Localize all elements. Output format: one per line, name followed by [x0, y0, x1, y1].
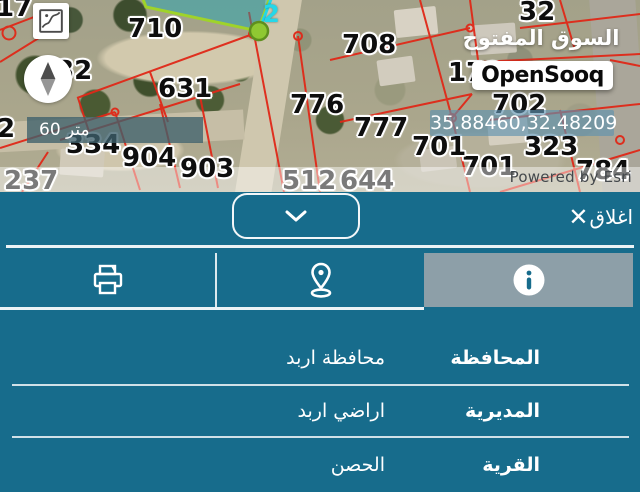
parcel-label: 631 [158, 74, 212, 104]
row-label: القرية [385, 454, 540, 476]
header-divider [6, 245, 634, 248]
compass-needle-icon [32, 61, 64, 97]
opensooq-logo: OpenSooq [472, 61, 613, 90]
parcel-label: 903 [180, 154, 234, 184]
basemap-toggle-button[interactable] [33, 3, 69, 39]
tab-info-active[interactable] [424, 253, 633, 307]
selected-parcel-marker-label: 2 [263, 0, 280, 28]
collapse-panel-button[interactable] [232, 193, 360, 239]
info-row-governorate: المحافظة محافظة اربد [0, 330, 640, 385]
parcel-label: 904 [122, 143, 176, 173]
parcel-label: 776 [290, 90, 344, 120]
close-label: اغلاق [590, 205, 633, 229]
parcel-label: 710 [128, 14, 182, 44]
opensooq-arabic-logo: السوق المفتوح [462, 26, 620, 50]
info-icon [511, 262, 547, 298]
parcel-info-panel: ✕ اغلاق [0, 192, 640, 480]
row-value: اراضي اربد [298, 400, 385, 422]
parcel-label: 323 [524, 132, 578, 162]
tab-location[interactable] [217, 253, 424, 307]
tab-print[interactable] [0, 253, 215, 307]
parcel-label: 17 [0, 0, 32, 23]
info-row-directorate: المديرية اراضي اربد [0, 385, 640, 437]
info-row-village: القرية الحصن [0, 437, 640, 492]
satellite-map[interactable]: 710 632 631 708 32 173 702 776 777 701 3… [0, 0, 640, 192]
parcel-label: 701 [412, 132, 466, 162]
parcel-label: 2 [0, 114, 15, 144]
row-value: محافظة اربد [286, 347, 385, 369]
panel-tabs [0, 253, 640, 307]
row-label: المحافظة [385, 347, 540, 369]
row-label: المديرية [385, 400, 540, 422]
coordinates-readout: 35.88460,32.48209 [430, 110, 614, 136]
chevron-down-icon [285, 210, 307, 222]
location-pin-icon [303, 260, 339, 300]
parcel-label: 777 [354, 113, 408, 143]
basemap-map-icon [38, 8, 64, 34]
parcel-label: 708 [342, 30, 396, 60]
parcel-label: 32 [519, 0, 555, 27]
printer-icon [91, 264, 125, 296]
map-scale-bar: 60 متر [27, 117, 203, 143]
compass-control[interactable] [24, 55, 72, 103]
row-value: الحصن [331, 454, 385, 476]
close-button[interactable]: ✕ اغلاق [568, 200, 633, 234]
tab-underline [0, 307, 424, 310]
close-icon: ✕ [568, 202, 588, 232]
esri-attribution: Powered by Esri [510, 168, 632, 186]
